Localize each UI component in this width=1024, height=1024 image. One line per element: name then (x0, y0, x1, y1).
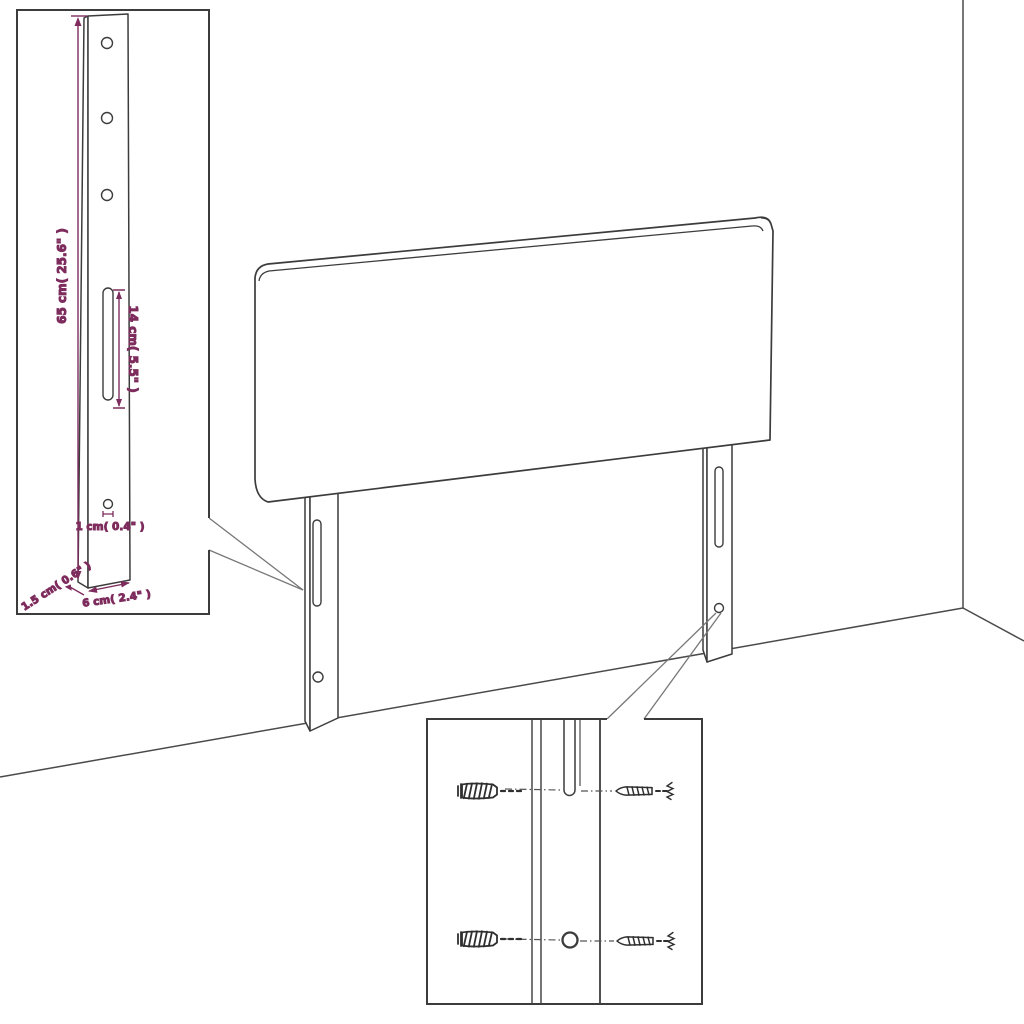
callout-line-upper (209, 518, 303, 590)
right-leg-front-face (707, 440, 732, 662)
left-leg (305, 488, 338, 731)
right-leg (703, 440, 732, 662)
assembly-diagram-page: 65 cm( 25.6" ) 14 cm( 5.5" ) 1 cm( 0.4" … (0, 0, 1024, 1024)
callout-leg-detail (209, 518, 303, 590)
bracket-front-face (88, 14, 130, 588)
callout-line-left (607, 613, 716, 719)
hardware-detail-inset (427, 719, 702, 1004)
floor-line-right (963, 608, 1024, 641)
dimension-hole-label: 1 cm( 0.4" ) (75, 521, 144, 533)
leg-detail-bracket (78, 14, 130, 588)
callout-line-lower (209, 550, 303, 590)
headboard-panel-outline (255, 217, 773, 502)
callout-line-right (644, 613, 721, 719)
headboard-panel (255, 217, 773, 502)
headboard-assembly-diagram: 65 cm( 25.6" ) 14 cm( 5.5" ) 1 cm( 0.4" … (0, 0, 1024, 1024)
dimension-height-label: 65 cm( 25.6" ) (55, 228, 69, 324)
left-leg-front-face (310, 488, 338, 731)
leg-detail-inset: 65 cm( 25.6" ) 14 cm( 5.5" ) 1 cm( 0.4" … (17, 10, 209, 614)
dimension-slot-label: 14 cm( 5.5" ) (126, 305, 140, 392)
